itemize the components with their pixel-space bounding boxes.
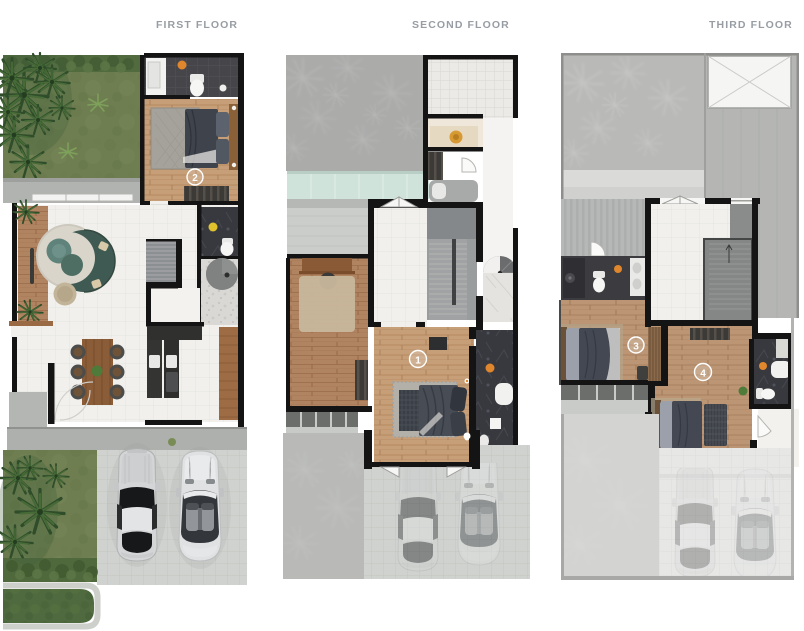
svg-text:4: 4 [700,369,706,380]
svg-text:2: 2 [192,173,198,184]
svg-text:1: 1 [415,356,421,367]
svg-text:3: 3 [633,342,639,353]
